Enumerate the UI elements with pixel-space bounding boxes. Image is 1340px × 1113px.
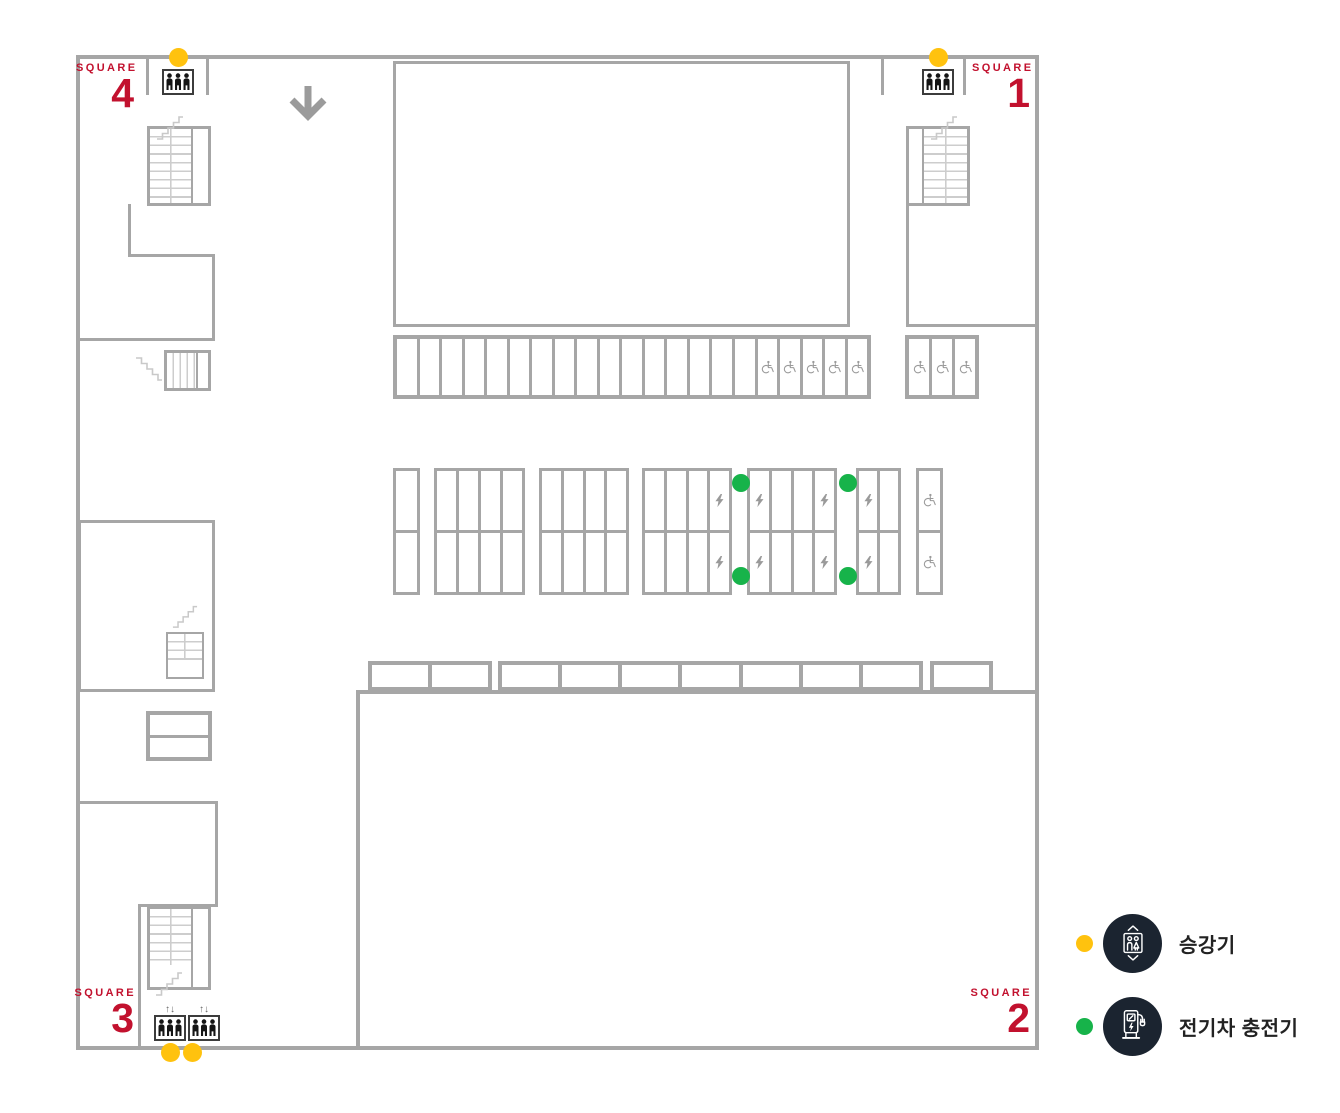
parking-row [919,471,940,530]
utility-cell [150,735,208,758]
parking-space [555,339,578,395]
parking-space [503,471,522,530]
parking-space [803,665,863,687]
parking-space [667,533,689,592]
parking-row [645,471,729,530]
ev-charging-space [859,533,880,592]
parking-space [880,471,898,530]
stairwell-left-room [166,632,204,679]
wall [80,338,215,341]
stairs-landing-left [164,350,211,391]
parking-space [577,339,600,395]
legend-ev-charger-label: 전기차 충전기 [1179,1012,1298,1041]
accessible-parking-space [909,339,932,395]
parking-space [459,533,481,592]
parking-space [432,665,488,687]
parking-space [532,339,555,395]
ev-charging-space [750,533,772,592]
parking-space [690,339,713,395]
ev-bolt-icon [861,493,876,508]
wheelchair-icon [850,360,865,375]
parking-space [586,471,608,530]
parking-block-accessible [905,335,979,399]
wall [881,59,884,95]
accessible-parking-space [932,339,955,395]
parking-space [667,471,689,530]
elevator-marker-dot [183,1043,202,1062]
parking-space [481,471,503,530]
wheelchair-icon [958,360,973,375]
ev-charging-space [815,533,834,592]
elevator-icon [188,1015,220,1041]
parking-block [434,468,525,595]
elevator-marker-dot [1076,935,1093,952]
ev-charging-space [815,471,834,530]
ev-bolt-icon [752,493,767,508]
parking-space [600,339,623,395]
ev-charger-marker-dot [732,474,750,492]
parking-space [465,339,488,395]
ev-charger-marker-dot [732,567,750,585]
parking-block [393,468,420,595]
legend-item-elevator: 승강기 [1076,913,1236,973]
accessible-parking-space [955,339,975,395]
top-center-room [393,61,850,327]
wall [138,904,141,1046]
parking-space [487,339,510,395]
ev-charging-space [710,533,729,592]
stairs-icon [172,602,198,629]
parking-row [372,665,488,687]
ev-bolt-icon [712,555,727,570]
wheelchair-icon [922,493,937,508]
parking-block-ev [747,468,837,595]
legend-item-ev-charger: 전기차 충전기 [1076,996,1298,1056]
parking-space [743,665,803,687]
parking-space [396,533,417,592]
wheelchair-icon [935,360,950,375]
wall [906,204,909,327]
parking-space [564,471,586,530]
parking-space [437,533,459,592]
legend-elevator-label: 승강기 [1179,929,1236,958]
parking-space [735,339,758,395]
wall [128,254,215,257]
elevator-unit: ↑↓ [152,1004,188,1041]
accessible-parking-space [780,339,803,395]
parking-block-ev [642,468,732,595]
parking-row [542,530,626,592]
parking-block [539,468,629,595]
elevator-icon [922,69,954,95]
drive-direction-arrow [287,84,329,132]
ev-bolt-icon [817,493,832,508]
elevator-unit: ↑↓ [186,1004,222,1041]
stair-treads [150,129,191,203]
parking-row [859,530,898,592]
parking-space [397,339,420,395]
wheelchair-icon [922,555,937,570]
parking-space [420,339,443,395]
elevator-marker-dot [929,48,948,67]
wheelchair-icon [827,360,842,375]
wall [146,59,149,95]
wall [212,254,215,341]
square-number: 1 [972,75,1030,113]
accessible-parking-space [919,533,940,592]
parking-space [863,665,919,687]
ev-bolt-icon [712,493,727,508]
parking-space [689,533,711,592]
parking-block-accessible [916,468,943,595]
square-number: 4 [76,75,134,113]
parking-space [645,339,668,395]
wall [963,59,966,95]
parking-space [586,533,608,592]
parking-strip [498,661,923,691]
parking-row [934,665,989,687]
parking-space [607,533,626,592]
stair-divider [191,909,193,987]
parking-row [542,471,626,530]
legend-elevator-icon [1117,923,1149,963]
parking-space [645,533,667,592]
elevator-icon [154,1015,186,1041]
utility-cell [150,715,208,735]
parking-space [502,665,562,687]
accessible-parking-space [825,339,848,395]
parking-space [372,665,432,687]
accessible-parking-space [848,339,868,395]
legend-ev-charger-badge [1103,997,1162,1056]
ev-charger-marker-dot [839,474,857,492]
parking-space [442,339,465,395]
parking-strip [368,661,492,691]
parking-space [481,533,503,592]
square-2-label: SQUARE 2 [970,987,1030,1038]
parking-row [502,665,919,687]
ev-bolt-icon [861,555,876,570]
parking-row [909,339,975,395]
parking-space [772,533,794,592]
stair-treads [167,353,196,388]
elevator-icon [162,69,194,95]
ev-charger-marker-dot [1076,1018,1093,1035]
parking-space [437,471,459,530]
parking-space [667,339,690,395]
wall [80,801,218,804]
ev-charger-marker-dot [839,567,857,585]
wheelchair-icon [782,360,797,375]
legend-ev-charger-icon [1116,1006,1150,1046]
parking-space [622,665,682,687]
parking-row-top [393,335,871,399]
ev-bolt-icon [752,555,767,570]
parking-row [919,530,940,592]
parking-space [645,471,667,530]
parking-row [750,530,834,592]
parking-space [934,665,989,687]
parking-space [712,339,735,395]
parking-space [510,339,533,395]
parking-space [622,339,645,395]
parking-strip [930,661,993,691]
parking-space [459,471,481,530]
parking-row [645,530,729,592]
parking-space [682,665,742,687]
ev-charging-space [750,471,772,530]
elevator-updown-arrows: ↑↓ [152,1004,188,1015]
elevator-updown-arrows: ↑↓ [186,1004,222,1015]
accessible-parking-space [758,339,781,395]
square-number: 3 [70,1000,134,1038]
utility-block [146,711,212,761]
wall [356,690,360,1046]
parking-space [542,533,564,592]
stairs-icon [930,113,958,140]
square-3-label: SQUARE 3 [70,987,134,1038]
square-4-label: SQUARE 4 [76,62,134,113]
parking-row [396,471,417,530]
parking-space [772,471,794,530]
ev-bolt-icon [817,555,832,570]
wheelchair-icon [805,360,820,375]
stair-treads [168,634,202,660]
parking-space [794,533,816,592]
parking-space [503,533,522,592]
stairs-icon [156,113,184,140]
legend-elevator-badge [1103,914,1162,973]
stairs-icon [155,969,183,996]
elevator-marker-dot [169,48,188,67]
ev-charging-space [859,471,880,530]
parking-row [396,530,417,592]
parking-space [880,533,898,592]
ev-charging-space [710,471,729,530]
wheelchair-icon [912,360,927,375]
wall [128,204,131,257]
wall [215,801,218,907]
parking-row [437,530,522,592]
wall [906,324,1035,327]
parking-space [396,471,417,530]
parking-space [689,471,711,530]
accessible-parking-space [803,339,826,395]
parking-space [562,665,622,687]
square-number: 2 [970,1000,1030,1038]
stairs-icon [135,357,163,384]
parking-space [542,471,564,530]
parking-row [859,471,898,530]
elevator-marker-dot [161,1043,180,1062]
parking-space [564,533,586,592]
parking-row [397,339,867,395]
wheelchair-icon [760,360,775,375]
parking-floor-plan: SQUARE 4 ↑↓ SQUARE 1 ↑↓ [0,0,1340,1113]
square-1-label: SQUARE 1 [972,62,1030,113]
stair-treads [924,129,967,203]
stair-treads [150,909,191,965]
stair-divider [196,353,198,388]
wall [356,690,1035,694]
parking-space [607,471,626,530]
stair-divider [191,129,193,203]
parking-space [794,471,816,530]
accessible-parking-space [919,471,940,530]
parking-row [750,471,834,530]
wall [206,59,209,95]
parking-block-ev [856,468,901,595]
parking-row [437,471,522,530]
